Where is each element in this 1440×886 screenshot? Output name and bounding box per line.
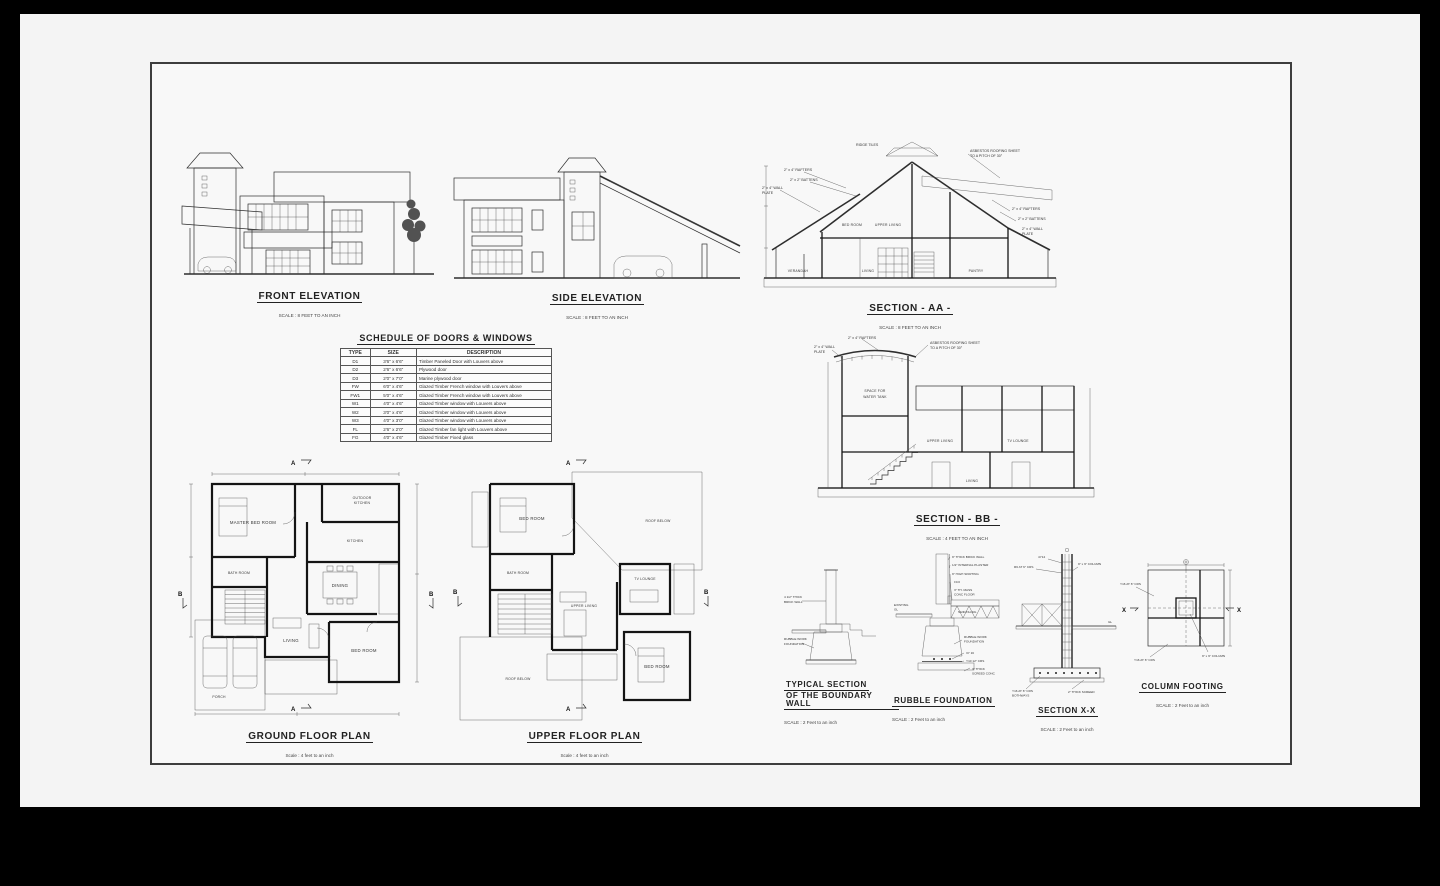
cf-column-label: 9" x 9" COLUMN [1202,654,1225,658]
gf-section-marker-b-left: B [178,592,187,608]
uf-bath-label: BATH ROOM [507,571,529,575]
cf-mesh-bottom-label: Y16 AT 6" CRS [1134,658,1155,662]
aa-battens-label: 2" x 2" BATTENS [790,178,818,182]
rf-rubble-label-2: FOUNDATION [964,640,984,644]
uf-section-marker-b-left: B [453,590,462,606]
xx-bars-label: 4Y12 [1038,555,1046,559]
cf-x-marker-left: X [1122,608,1138,614]
aa-battens-right-label: 2" x 2" BATTENS [1018,217,1046,221]
aa-upper-living-label: UPPER LIVING [875,223,901,227]
boundary-wall-title-2: OF THE BOUNDARY WALL [784,692,899,711]
uf-roof-below-label-1: ROOF BELOW [646,519,672,523]
gf-outdoor-kitchen-label-2: KITCHEN [354,501,371,505]
gf-outdoor-kitchen-label-1: OUTDOOR [353,496,372,500]
gf-kitchen-label: KITCHEN [347,539,364,543]
schedule-row: D22'6" x 6'6"Plywood door [341,365,552,374]
rf-skirting-label: 9" HIGH SKIRTING [952,572,979,576]
section-aa-title: SECTION - AA - [867,303,953,315]
schedule-header: DESCRIPTION [416,348,551,357]
bb-asbestos-label-1: ASBESTOS ROOFING SHEET [930,341,981,345]
ground-floor-plan-drawing: MASTER BED ROOM BATH ROOM OUTDOOR KITCHE… [177,452,442,724]
section-bb-scale: SCALE : 4 FEET TO AN INCH [926,536,988,541]
xx-column-label: 9" x 9" COLUMN [1078,562,1101,566]
svg-text:B: B [453,590,458,596]
section-bb-drawing: 2" x 4" RAFTERS 2" x 4" WALL PLATE ASBES… [812,332,1102,507]
boundary-wall-drawing: 4 1/2" THICK BRICK WALL RUBBLE WORK FOUN… [784,560,899,672]
schedule-header-row: TYPE SIZE DESCRIPTION [341,348,552,357]
rf-existing-label-1: EXISTING [894,603,909,607]
schedule-header: TYPE [341,348,371,357]
aa-rafters-right-label: 2" x 4" RAFTERS [1012,207,1041,211]
bw-rubble-label-2: FOUNDATION [784,642,804,646]
section-aa-drawing: 2" x 4" RAFTERS 2" x 2" BATTENS 2" x 4" … [760,136,1060,296]
section-bb-figure: 2" x 4" RAFTERS 2" x 4" WALL PLATE ASBES… [812,332,1102,544]
rubble-foundation-figure: 9" THICK BRICK WALL 1/2" INTERNAL PLASTE… [892,548,1002,725]
section-aa-figure: 2" x 4" RAFTERS 2" x 2" BATTENS 2" x 4" … [760,136,1060,333]
schedule-row: FW15'0" x 4'6"Glazed Timber French windo… [341,391,552,400]
aa-living-label: LIVING [862,269,874,273]
page-background: FRONT ELEVATION SCALE : 8 FEET TO AN INC… [20,14,1420,807]
svg-text:X: X [1237,608,1241,614]
boundary-wall-figure: 4 1/2" THICK BRICK WALL RUBBLE WORK FOUN… [784,560,899,729]
bb-living-label: LIVING [966,479,978,483]
gf-bath-label: BATH ROOM [228,571,250,575]
rf-floor-label-1: 3" TH. MASS [954,588,972,592]
ground-floor-plan-figure: MASTER BED ROOM BATH ROOM OUTDOOR KITCHE… [177,452,442,761]
gf-section-marker-a-bottom: A [291,704,311,713]
schedule-header: SIZE [370,348,416,357]
upper-floor-plan-figure: BED ROOM BATH ROOM UPPER LIVING TV LOUNG… [452,452,717,761]
gf-living-label: LIVING [283,638,299,643]
aa-wallplate-right-label-2: PLATE [1022,232,1034,236]
svg-text:B: B [704,590,709,596]
section-xx-title: SECTION X-X [1036,707,1098,717]
svg-text:A: A [291,707,296,713]
svg-text:A: A [566,707,571,713]
column-footing-figure: X X Y16 AT 6" CRS Y16 AT 6" CRS 9" x 9" … [1120,556,1245,711]
section-bb-title: SECTION - BB - [914,514,1000,526]
schedule-row: FL2'6" x 2'0"Glazed Timber fan light wit… [341,425,552,434]
gf-master-bed-label: MASTER BED ROOM [230,520,276,525]
upper-floor-plan-scale: Scale : 4 feet to an inch [560,753,608,758]
boundary-wall-title-1: TYPICAL SECTION [784,681,869,691]
svg-text:A: A [566,461,571,467]
bb-wallplate-label-1: 2" x 4" WALL [814,345,835,349]
rubble-foundation-title: RUBBLE FOUNDATION [892,697,995,707]
svg-text:B: B [429,592,434,598]
rf-floor-label-2: CONC FLOOR [954,593,975,597]
rf-rubble-label-1: RUBBLE WORK [964,635,988,639]
screenshot-root: { "elevations": { "front": {"title": "FR… [0,0,1440,886]
aa-verandah-label: VERANDAH [788,269,809,273]
aa-wallplate-label-1: 2" x 4" WALL [762,186,783,190]
gf-bed-label: BED ROOM [351,648,377,653]
aa-wallplate-label-2: PLATE [762,191,774,195]
rf-bars-label: 3Y 16 [966,651,974,655]
schedule-row: W14'0" x 4'6"Glazed Timber window with L… [341,399,552,408]
side-elevation-scale: SCALE : 8 FEET TO AN INCH [566,315,628,320]
uf-section-marker-a-bottom: A [566,704,586,713]
uf-section-marker-a-top: A [566,460,586,467]
schedule-title: SCHEDULE OF DOORS & WINDOWS [357,334,534,345]
gf-section-marker-b-right: B [429,592,434,608]
boundary-wall-scale: SCALE : 2 Feet to an inch [784,720,837,725]
aa-wallplate-right-label-1: 2" x 4" WALL [1022,227,1043,231]
bw-brick-label-1: 4 1/2" THICK [784,595,803,599]
schedule-row: FG4'0" x 4'6"Glazed Timber Fixed glass [341,433,552,442]
bb-wallplate-label-2: PLATE [814,350,826,354]
schedule-row: D32'0" x 7'0"Marine plywood door [341,374,552,383]
bb-rafters-label: 2" x 4" RAFTERS [848,336,877,340]
uf-upper-living-label: UPPER LIVING [571,604,597,608]
rf-mesh-label: Y10 12" CRS [966,659,984,663]
bb-water-tank-label-1: SPACE FOR [864,389,885,393]
uf-bed2-label: BED ROOM [644,664,670,669]
xx-screed-label: 2" THICK SCREED [1068,690,1095,694]
rf-plaster-label: 1/2" INTERNAL PLASTER [952,563,989,567]
schedule-figure: SCHEDULE OF DOORS & WINDOWS TYPE SIZE DE… [340,328,552,442]
aa-pantry-label: PANTRY [969,269,984,273]
rf-level-label: ±0.0 [954,580,960,584]
gf-section-marker-a-top: A [291,460,311,467]
schedule-table: TYPE SIZE DESCRIPTION D13'6" x 6'6"Timbe… [340,348,552,443]
bb-water-tank-label-2: WATER TANK [863,395,887,399]
cf-x-marker-right: X [1226,608,1241,614]
rubble-foundation-scale: SCALE : 2 Feet to an inch [892,717,945,722]
aa-ridge-label: RIDGE TILES [856,143,879,147]
column-footing-scale: SCALE : 2 Feet to an inch [1156,703,1209,708]
rf-sand-label: SAND FILLING [958,610,976,614]
cf-mesh-top-label: Y16 AT 6" CRS [1120,582,1141,586]
upper-floor-plan-title: UPPER FLOOR PLAN [527,731,643,743]
bb-tv-lounge-label: TV LOUNGE [1007,439,1029,443]
front-elevation-drawing [182,136,437,284]
uf-bed1-label: BED ROOM [519,516,545,521]
aa-asbestos-label-1: ASBESTOS ROOFING SHEET [970,149,1021,153]
bb-upper-living-label: UPPER LIVING [927,439,953,443]
ground-floor-plan-title: GROUND FLOOR PLAN [246,731,372,743]
rf-brick-label: 9" THICK BRICK WALL [952,555,985,559]
front-elevation-scale: SCALE : 8 FEET TO AN INCH [279,313,341,318]
uf-roof-below-label-2: ROOF BELOW [506,677,532,681]
side-elevation-drawing [452,146,742,286]
gf-porch-label: PORCH [212,695,226,699]
uf-section-marker-b-right: B [704,590,709,606]
section-aa-scale: SCALE : 8 FEET TO AN INCH [879,325,941,330]
column-footing-drawing: X X Y16 AT 6" CRS Y16 AT 6" CRS 9" x 9" … [1120,556,1245,674]
bb-asbestos-label-2: TO A PITCH OF 30° [930,346,963,350]
schedule-row: W23'0" x 4'6"Glazed Timber window with L… [341,408,552,417]
xx-stirrups-label: R6 AT 6" CRS [1014,565,1033,569]
xx-gl-label: GL [1108,620,1112,624]
aa-asbestos-label-2: TO A PITCH OF 30° [970,154,1003,158]
column-footing-title: COLUMN FOOTING [1139,683,1225,693]
rf-screed-label-1: 3" THICK [972,667,986,671]
drawing-sheet: FRONT ELEVATION SCALE : 8 FEET TO AN INC… [150,62,1292,765]
uf-tv-lounge-label: TV LOUNGE [634,577,656,581]
aa-bed-room-label: BED ROOM [842,223,862,227]
svg-text:X: X [1122,608,1126,614]
bw-rubble-label-1: RUBBLE WORK [784,637,808,641]
front-elevation-figure: FRONT ELEVATION SCALE : 8 FEET TO AN INC… [182,136,437,321]
xx-mesh-label-1: Y16 AT 6" CRS [1012,689,1033,693]
gf-dining-label: DINING [332,583,349,588]
schedule-row: D13'6" x 6'6"Timber Paneled Door with Lo… [341,357,552,366]
section-xx-scale: SCALE : 2 Feet to an inch [1040,727,1093,732]
aa-rafters-label: 2" x 4" RAFTERS [784,168,813,172]
rf-existing-label-2: GL [894,608,898,612]
section-xx-drawing: 4Y12 R6 AT 6" CRS 9" x 9" COLUMN GL Y16 … [1012,546,1122,698]
section-xx-figure: 4Y12 R6 AT 6" CRS 9" x 9" COLUMN GL Y16 … [1012,546,1122,735]
schedule-row: FW6'0" x 4'6"Glazed Timber French window… [341,382,552,391]
schedule-row: W34'0" x 3'0"Glazed Timber window with L… [341,416,552,425]
side-elevation-title: SIDE ELEVATION [550,293,644,305]
xx-mesh-label-2: BOTHWAYS [1012,694,1029,698]
front-elevation-title: FRONT ELEVATION [257,291,363,303]
svg-text:A: A [291,461,296,467]
rf-screed-label-2: SCREED CONC [972,672,996,676]
side-elevation-figure: SIDE ELEVATION SCALE : 8 FEET TO AN INCH [452,146,742,323]
upper-floor-plan-drawing: BED ROOM BATH ROOM UPPER LIVING TV LOUNG… [452,452,717,724]
ground-floor-plan-scale: Scale : 4 feet to an inch [285,753,333,758]
bw-brick-label-2: BRICK WALL [784,600,803,604]
rubble-foundation-drawing: 9" THICK BRICK WALL 1/2" INTERNAL PLASTE… [892,548,1002,688]
svg-text:B: B [178,592,183,598]
